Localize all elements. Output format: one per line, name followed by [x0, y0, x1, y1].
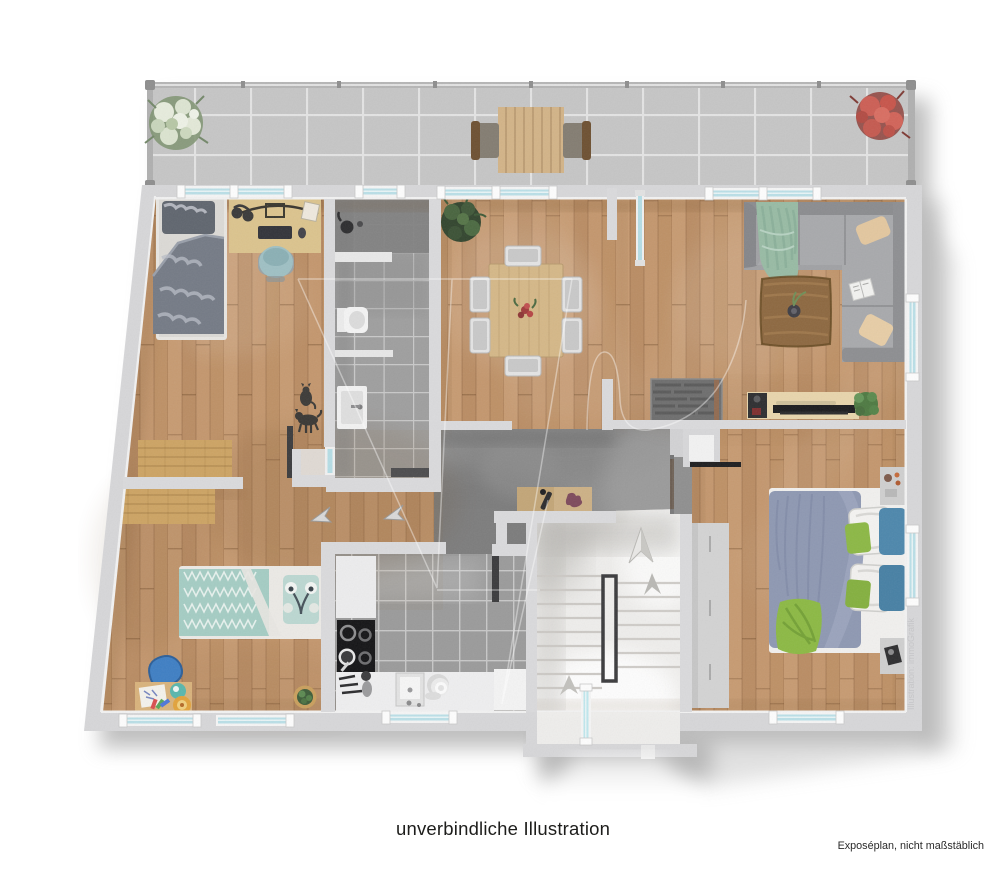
- svg-text:Illustration: immoGrafik: Illustration: immoGrafik: [906, 617, 916, 710]
